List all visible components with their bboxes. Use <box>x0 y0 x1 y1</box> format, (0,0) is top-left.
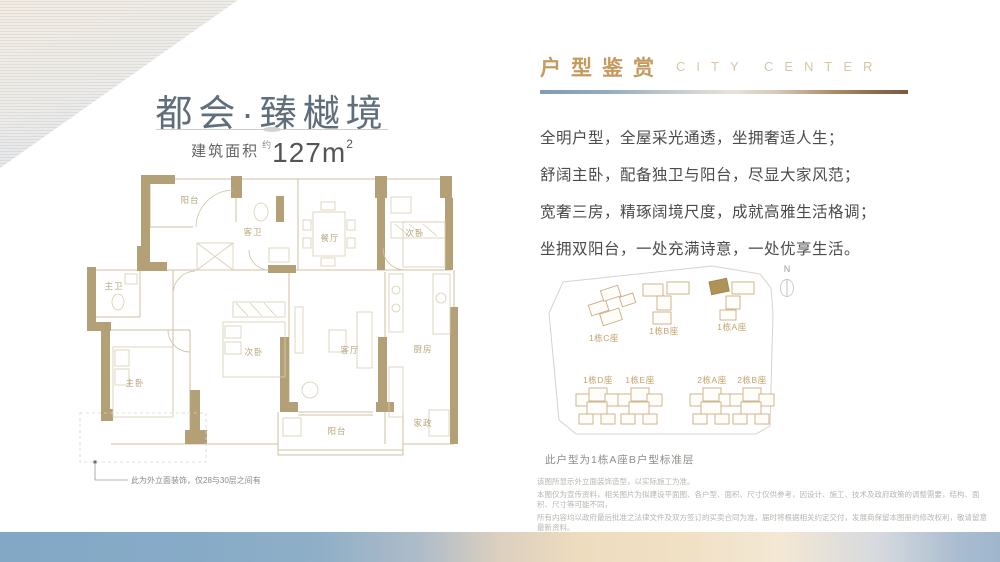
section-title-cn: 户型鉴赏 <box>540 52 664 82</box>
marketing-copy: 全明户型，全屋采光通透，坐拥奢适人生； 舒阔主卧，配备独卫与阳台，尽显大家风范；… <box>540 120 980 268</box>
floorplan-thick-walls <box>87 175 458 444</box>
room-label-living: 客厅 <box>340 345 359 355</box>
room-label-balcony-top: 阳台 <box>180 195 199 205</box>
brochure-page: 都会·臻樾境 建筑面积约127m2 <box>0 0 1000 562</box>
area-approx-mark: 约 <box>262 140 271 150</box>
room-label-kitchen: 厨房 <box>413 344 432 354</box>
room-label-master-bath: 主卫 <box>104 281 123 291</box>
floorplan-drawing: 阳台 客卫 餐厅 次卧 主卫 次卧 客厅 厨房 主卧 阳台 家政 此为外立面装饰… <box>73 162 493 492</box>
area-superscript: 2 <box>346 137 353 151</box>
room-label-bedroom2: 次卧 <box>405 228 424 238</box>
title-divider <box>156 129 388 130</box>
copy-line: 宽奢三房，精琢阔境尺度，成就高雅生活格调； <box>540 194 980 231</box>
disclaimer: 该图所显示外立面装饰造型，以实际施工为准。 本图仅为宣传资料，相关图片为拟建设平… <box>537 477 987 536</box>
building-label-1B: 1栋B座 <box>649 326 678 336</box>
room-label-bedroom3: 次卧 <box>244 347 263 357</box>
north-indicator: N <box>781 264 794 297</box>
site-buildings <box>576 278 774 424</box>
area-label: 建筑面积 <box>191 143 259 160</box>
section-title-en: CITY CENTER <box>676 59 883 74</box>
room-label-dining: 餐厅 <box>320 233 339 243</box>
building-label-1E: 1栋E座 <box>625 375 654 385</box>
disclaimer-line: 该图所显示外立面装饰造型，以实际施工为准。 <box>537 477 987 487</box>
copy-line: 舒阔主卧，配备独卫与阳台，尽显大家风范； <box>540 157 980 194</box>
room-label-guest-bath: 客卫 <box>243 227 262 237</box>
building-label-2A: 2栋A座 <box>697 375 726 385</box>
facade-note: 此为外立面装饰，仅28与30层之间有 <box>131 475 261 485</box>
disclaimer-line: 本图仅为宣传资料，相关图片为拟建设平面图、各户型、面积、尺寸仅供参考，因设计、施… <box>537 490 987 510</box>
gradient-rule <box>540 90 908 94</box>
building-label-1D: 1栋D座 <box>583 375 613 385</box>
building-label-2B: 2栋B座 <box>737 375 766 385</box>
room-label-master-bedroom: 主卧 <box>125 378 144 388</box>
siteplan-caption: 此户型为1栋A座B户型标准层 <box>545 452 694 467</box>
highlighted-unit <box>709 278 729 294</box>
room-label-balcony-bottom: 阳台 <box>327 426 346 436</box>
footer-gradient-bar <box>0 532 1000 562</box>
building-label-1A: 1栋A座 <box>717 322 746 332</box>
room-label-utility: 家政 <box>413 418 432 428</box>
divider-lens-ornament <box>263 127 281 132</box>
north-label: N <box>784 264 791 274</box>
copy-line: 全明户型，全屋采光通透，坐拥奢适人生； <box>540 120 980 157</box>
floorplan-facade-decoration <box>80 413 206 480</box>
building-label-1C: 1栋C座 <box>589 333 619 343</box>
disclaimer-line: 所有内容均以政府最后批准之法律文件及双方签订的买卖合同为准，届时将根据相关约定交… <box>537 513 987 533</box>
siteplan-drawing: 1栋C座 1栋B座 1栋A座 1栋D座 1栋E座 2栋A座 2栋B座 N <box>540 258 820 448</box>
